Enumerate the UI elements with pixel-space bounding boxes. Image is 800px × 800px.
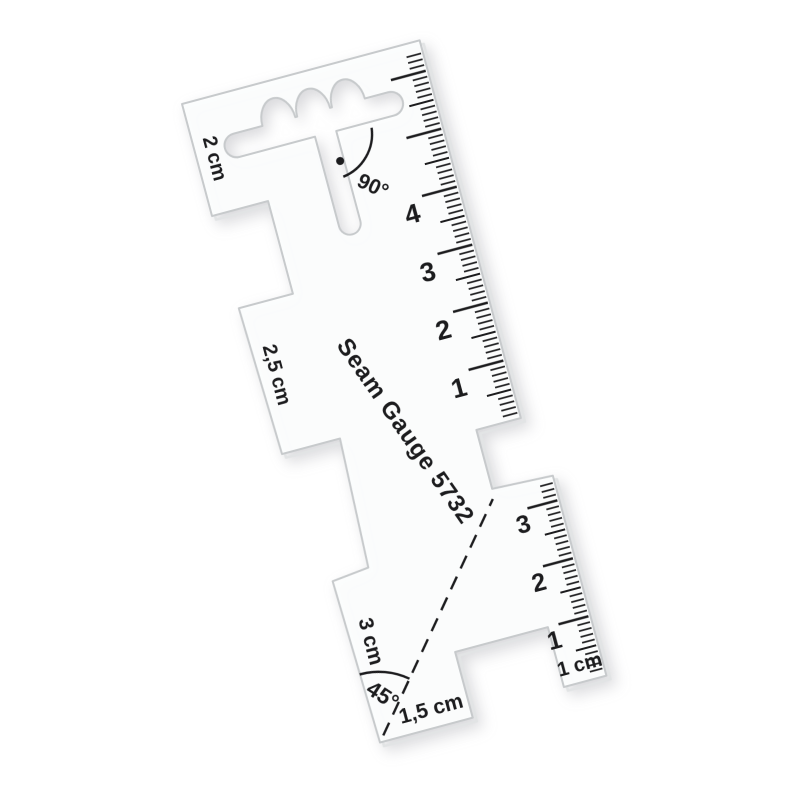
product-photo: document.getElementById('gauge-body').se…: [0, 0, 800, 800]
seam-gauge-illustration: document.getElementById('gauge-body').se…: [0, 0, 800, 800]
seam-gauge: document.getElementById('gauge-body').se…: [182, 35, 612, 753]
